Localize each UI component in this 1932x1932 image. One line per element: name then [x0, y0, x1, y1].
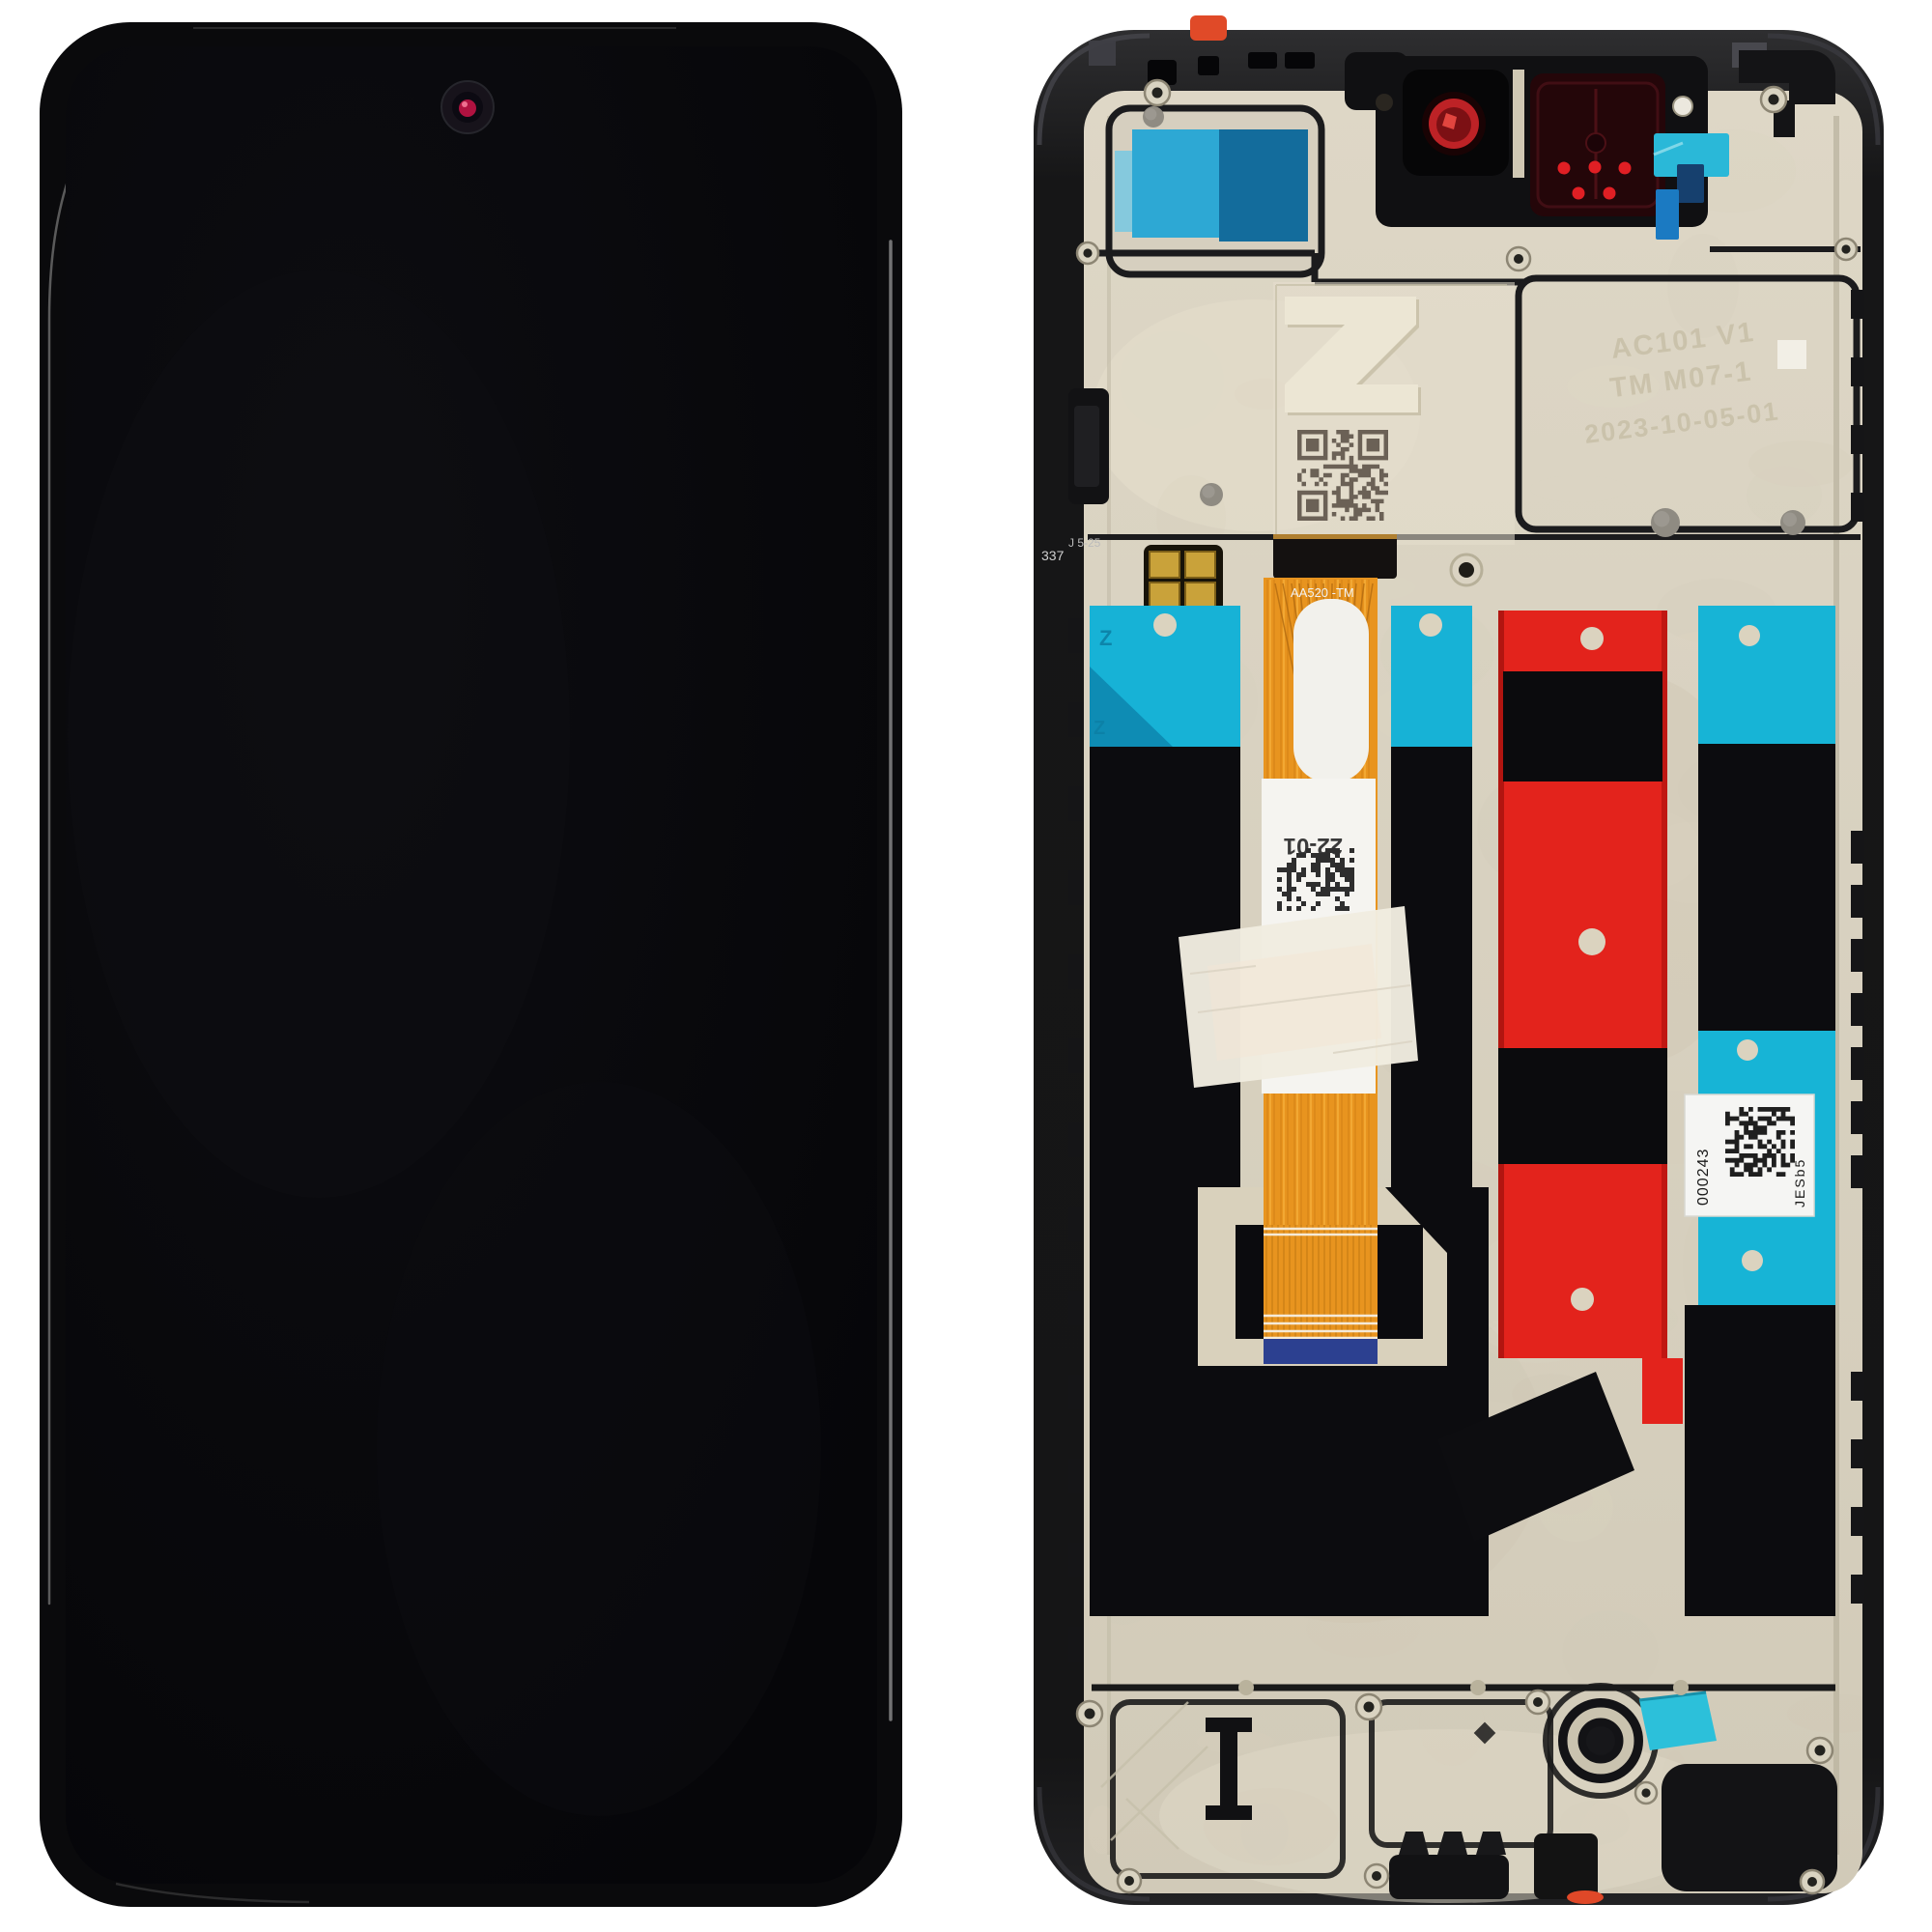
svg-text:Z: Z [1099, 626, 1112, 650]
svg-text:000243: 000243 [1695, 1149, 1712, 1206]
svg-text:Z: Z [1094, 718, 1105, 739]
svg-text:AA520 -TM: AA520 -TM [1291, 585, 1354, 600]
svg-text:JESb5: JESb5 [1792, 1158, 1807, 1207]
svg-text:J 5-25: J 5-25 [1068, 536, 1101, 550]
svg-text:337: 337 [1041, 548, 1065, 563]
